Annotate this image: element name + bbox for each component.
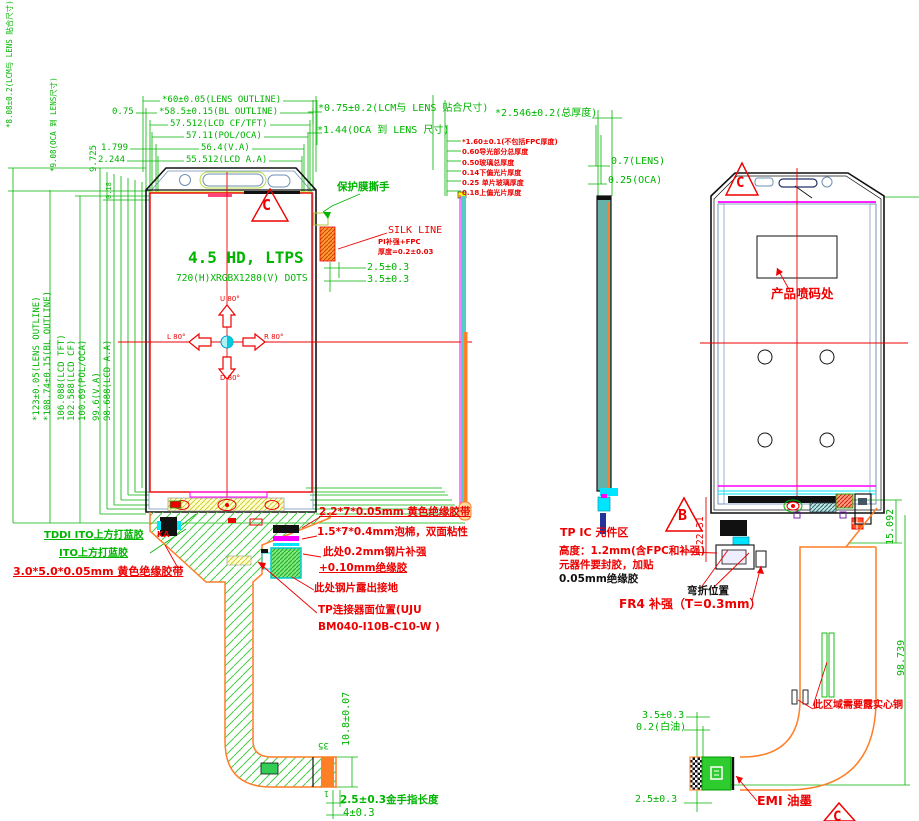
dim-25-emi: 2.5±0.3 xyxy=(635,795,677,805)
dim-2244: 2.244 xyxy=(96,156,127,165)
pin-count: 35 xyxy=(318,740,329,749)
angle-left: L 80° xyxy=(167,334,186,341)
silk-dim-35: 3.5±0.3 xyxy=(367,275,409,285)
sensor-hole xyxy=(268,175,290,187)
dim-9725-rot: 9.725 xyxy=(90,145,99,172)
dim-10874-rot: *108.74±0.15(BL OUTLINE) xyxy=(44,291,53,421)
connector-label-1: TP连接器面位置(UJU xyxy=(318,605,422,616)
dim-075: 0.75 xyxy=(110,108,136,117)
angle-up: U 80° xyxy=(220,296,240,303)
steel-reinforce-label: 此处0.2mm钢片补强 xyxy=(323,547,426,558)
rear-view-bottom-components xyxy=(716,486,876,569)
emi-ink-label: EMI 油墨 xyxy=(757,795,812,808)
triangle-b-letter: B xyxy=(678,508,687,523)
bl-side-view xyxy=(458,192,471,520)
rear-view-outline xyxy=(700,163,908,513)
dim-908-rot: *9.08(OCA 到 LENS尺寸) xyxy=(50,77,58,172)
dim-10069-rot: 100.69(POL/OCA) xyxy=(79,340,88,421)
triangle-c-rear-letter: C xyxy=(736,176,744,190)
dim-pol-oca-w: 57.11(POL/OCA) xyxy=(184,132,264,141)
dim-lcd-aa-w: 55.512(LCD A.A) xyxy=(184,156,269,165)
silk-thickness-label: 厚度=0.2±0.03 xyxy=(378,249,433,256)
triangle-c-bottom-letter: C xyxy=(833,810,841,821)
blue-glue-tddi-label: TDDI ITO上方打蓝胶 xyxy=(44,531,144,541)
stack-line: 0.60导光部分总厚度 xyxy=(462,147,558,157)
arrow-up-icon xyxy=(219,305,235,327)
silk-pi-label: PI补强+FPC xyxy=(378,239,421,246)
dim-98688-rot: 98.688(LCD A.A) xyxy=(104,340,113,421)
lcd-module-engineering-drawing: *60±0.05(LENS OUTLINE) *58.5±0.15(BL OUT… xyxy=(0,0,919,821)
dim-oca-t: 0.25(OCA) xyxy=(608,176,662,186)
dim-996-rot: 99.6(V.A) xyxy=(93,372,102,421)
panel-title: 4.5 HD, LTPS xyxy=(188,250,304,266)
ka-label: KA xyxy=(157,531,169,539)
emi-block xyxy=(690,633,834,790)
dim-lens-outline-w: *60±0.05(LENS OUTLINE) xyxy=(160,96,283,105)
dim-2231-rot: 22.31 xyxy=(696,516,706,545)
dim-35-emi: 3.5±0.3 xyxy=(642,711,684,721)
dim-106088-rot: 106.088(LCD TFT) xyxy=(58,334,67,421)
dim-15092-rot: 15.092 xyxy=(886,509,896,545)
module-side-view xyxy=(597,196,618,534)
dim-lcd-cftft-w: 57.512(LCD CF/TFT) xyxy=(168,120,270,129)
rear-flex-tail xyxy=(740,508,877,790)
protect-film-label: 保护膜撕手 xyxy=(337,182,390,193)
triangle-c-letter: C xyxy=(262,198,271,213)
silk-line-label: SILK LINE xyxy=(388,226,442,236)
tp-ic xyxy=(720,520,747,536)
thickness-stack: *1.60±0.1(不包括FPC厚度) 0.60导光部分总厚度 0.50玻璃总厚… xyxy=(462,137,558,199)
stack-line: 0.50玻璃总厚度 xyxy=(462,158,558,168)
insulation-label: +0.10mm绝缘胶 xyxy=(319,563,407,574)
ground-label: 此处钢片露出接地 xyxy=(314,583,398,594)
dim-123-rot: *123±0.05(LENS OUTLINE) xyxy=(33,296,42,421)
solid-copper-label: 此区域需要露实心铜 xyxy=(813,701,903,711)
dim-lcm-lens-gap: *0.75±0.2(LCM与 LENS 贴合尺寸) xyxy=(318,104,488,114)
dim-bl-outline-w: *58.5±0.15(BL OUTLINE) xyxy=(157,108,280,117)
foam-label: 1.5*7*0.4mm泡棉，双面粘性 xyxy=(317,527,468,538)
dim-oca-lens-gap: *1.44(OCA 到 LENS 尺寸) xyxy=(317,126,449,136)
spray-code-label: 产品喷码处 xyxy=(771,288,834,301)
stack-line: 0.14下偏光片厚度 xyxy=(462,168,558,178)
gold-finger-label: 2.5±0.3金手指长度 xyxy=(340,795,439,806)
stack-line: 0.25 单片玻璃厚度 xyxy=(462,178,558,188)
fr4-label: FR4 补强（T=0.3mm） xyxy=(619,598,761,610)
tp-ic-label-1: TP IC 元件区 xyxy=(560,527,628,538)
camera-hole xyxy=(180,175,191,186)
gold-fingers xyxy=(321,757,334,787)
silk-dim-25: 2.5±0.3 xyxy=(367,263,409,273)
tp-ic-label-2: 高度：1.2mm(含FPC和补强) xyxy=(559,546,705,557)
panel-resolution: 720(H)XRGBX1280(V) DOTS xyxy=(176,274,308,284)
connector-label-2: BM040-I10B-C10-W ) xyxy=(318,622,440,633)
tp-ic-label-4: 0.05mm绝缘胶 xyxy=(559,574,638,585)
silk-line-section xyxy=(314,213,335,261)
dim-lens-t: 0.7(LENS) xyxy=(611,157,665,167)
dim-gold-width: 4±0.3 xyxy=(343,808,375,819)
stack-line: 0.18上偏光片厚度 xyxy=(462,188,558,198)
angle-right: R 80° xyxy=(264,334,284,341)
dim-flex-height: 10.8±0.07 xyxy=(342,692,352,746)
dim-102588-rot: 102.588(LCD CF) xyxy=(68,340,77,421)
front-view-fpc-area xyxy=(150,492,336,787)
bend-position-label: 弯折位置 xyxy=(687,586,729,597)
dim-total-thickness: *2.546±0.2(总厚度) xyxy=(495,109,597,119)
dim-018-rot: 0.18 xyxy=(106,182,113,199)
white-oil-label: 0.2(白油) xyxy=(636,723,686,733)
dim-808-rot: *8.08±0.2(LCM与 LENS 贴合尺寸) xyxy=(6,0,14,128)
dim-1799: 1.799 xyxy=(99,144,130,153)
blue-glue-ito-label: ITO上方打蓝胶 xyxy=(59,549,128,559)
tp-ic-label-3: 元器件要封胶，加贴 xyxy=(559,560,654,571)
tp-connector xyxy=(271,548,301,578)
stack-line: *1.60±0.1(不包括FPC厚度) xyxy=(462,137,558,147)
arrow-left-icon xyxy=(189,334,211,350)
fpc-flex-tail xyxy=(150,512,336,787)
pin-one: 1 xyxy=(324,789,329,797)
yellow-tape-3-label: 3.0*5.0*0.05mm 黄色绝缘胶带 xyxy=(13,566,183,577)
dim-va-w: 56.4(V.A) xyxy=(199,144,252,153)
yellow-tape-2-label: 2.2*7*0.05mm 黄色绝缘胶带 xyxy=(319,507,470,518)
angle-down: D 80° xyxy=(220,375,240,382)
dim-98739-rot: 98.739 xyxy=(897,640,907,676)
speaker-slot xyxy=(203,174,263,186)
arrow-right-icon xyxy=(243,334,265,350)
drawing-geometry xyxy=(0,0,919,821)
